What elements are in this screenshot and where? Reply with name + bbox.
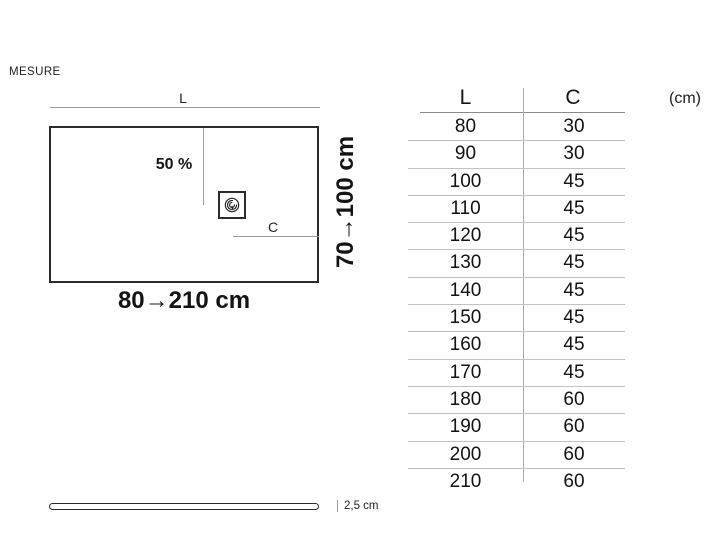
size-table-header-c: C bbox=[523, 86, 623, 110]
table-cell-l: 120 bbox=[408, 223, 523, 249]
table-cell-c: 45 bbox=[523, 196, 625, 222]
length-dimension-label: L bbox=[163, 90, 203, 106]
table-cell-l: 190 bbox=[408, 414, 523, 440]
table-row: 210 60 bbox=[408, 469, 625, 495]
table-cell-c: 45 bbox=[523, 169, 625, 195]
table-cell-l: 200 bbox=[408, 442, 523, 468]
table-row: 180 60 bbox=[408, 387, 625, 414]
table-row: 80 30 bbox=[408, 114, 625, 141]
table-cell-c: 45 bbox=[523, 223, 625, 249]
size-table-unit-label: (cm) bbox=[655, 90, 715, 108]
table-cell-c: 45 bbox=[523, 250, 625, 276]
drain-icon bbox=[218, 191, 246, 219]
table-cell-l: 80 bbox=[408, 114, 523, 140]
table-cell-l: 90 bbox=[408, 141, 523, 167]
table-cell-c: 60 bbox=[523, 442, 625, 468]
table-row: 190 60 bbox=[408, 414, 625, 441]
table-cell-l: 150 bbox=[408, 305, 523, 331]
slope-divider-line bbox=[203, 128, 204, 205]
thickness-label: 2,5 cm bbox=[344, 500, 379, 512]
table-cell-c: 45 bbox=[523, 332, 625, 358]
table-cell-c: 60 bbox=[523, 387, 625, 413]
table-row: 160 45 bbox=[408, 332, 625, 359]
slope-percentage-label: 50 % bbox=[150, 156, 198, 174]
drain-offset-dimension-line bbox=[233, 236, 319, 237]
table-row: 90 30 bbox=[408, 141, 625, 168]
thickness-tick bbox=[337, 500, 338, 512]
table-cell-l: 140 bbox=[408, 278, 523, 304]
drain-offset-dimension-label: C bbox=[262, 219, 284, 235]
table-cell-l: 170 bbox=[408, 360, 523, 386]
size-table-rows: 80 30 90 30 100 45 110 45 120 45 130 45 … bbox=[408, 114, 625, 495]
table-cell-l: 100 bbox=[408, 169, 523, 195]
table-cell-l: 180 bbox=[408, 387, 523, 413]
table-row: 110 45 bbox=[408, 196, 625, 223]
page-title: MESURE bbox=[9, 66, 61, 78]
table-cell-c: 30 bbox=[523, 114, 625, 140]
table-cell-c: 45 bbox=[523, 305, 625, 331]
length-range-label: 80→210 cm bbox=[49, 287, 319, 315]
size-table-header-l: L bbox=[408, 86, 523, 110]
table-cell-c: 60 bbox=[523, 469, 625, 495]
table-row: 120 45 bbox=[408, 223, 625, 250]
tray-side-profile bbox=[49, 503, 319, 510]
table-row: 200 60 bbox=[408, 442, 625, 469]
table-cell-l: 110 bbox=[408, 196, 523, 222]
measurement-sheet: MESURE L 50 % C 70→100 cm 80→210 cm L C … bbox=[0, 0, 720, 540]
width-range-label: 70→100 cm bbox=[332, 117, 360, 287]
table-row: 100 45 bbox=[408, 169, 625, 196]
table-row: 170 45 bbox=[408, 360, 625, 387]
table-cell-c: 45 bbox=[523, 360, 625, 386]
table-row: 140 45 bbox=[408, 278, 625, 305]
length-dimension-line bbox=[50, 107, 320, 108]
table-cell-c: 60 bbox=[523, 414, 625, 440]
table-cell-l: 160 bbox=[408, 332, 523, 358]
table-cell-c: 45 bbox=[523, 278, 625, 304]
tray-outline bbox=[49, 126, 319, 283]
table-cell-l: 210 bbox=[408, 469, 523, 495]
table-cell-c: 30 bbox=[523, 141, 625, 167]
table-cell-l: 130 bbox=[408, 250, 523, 276]
table-row: 150 45 bbox=[408, 305, 625, 332]
table-row: 130 45 bbox=[408, 250, 625, 277]
